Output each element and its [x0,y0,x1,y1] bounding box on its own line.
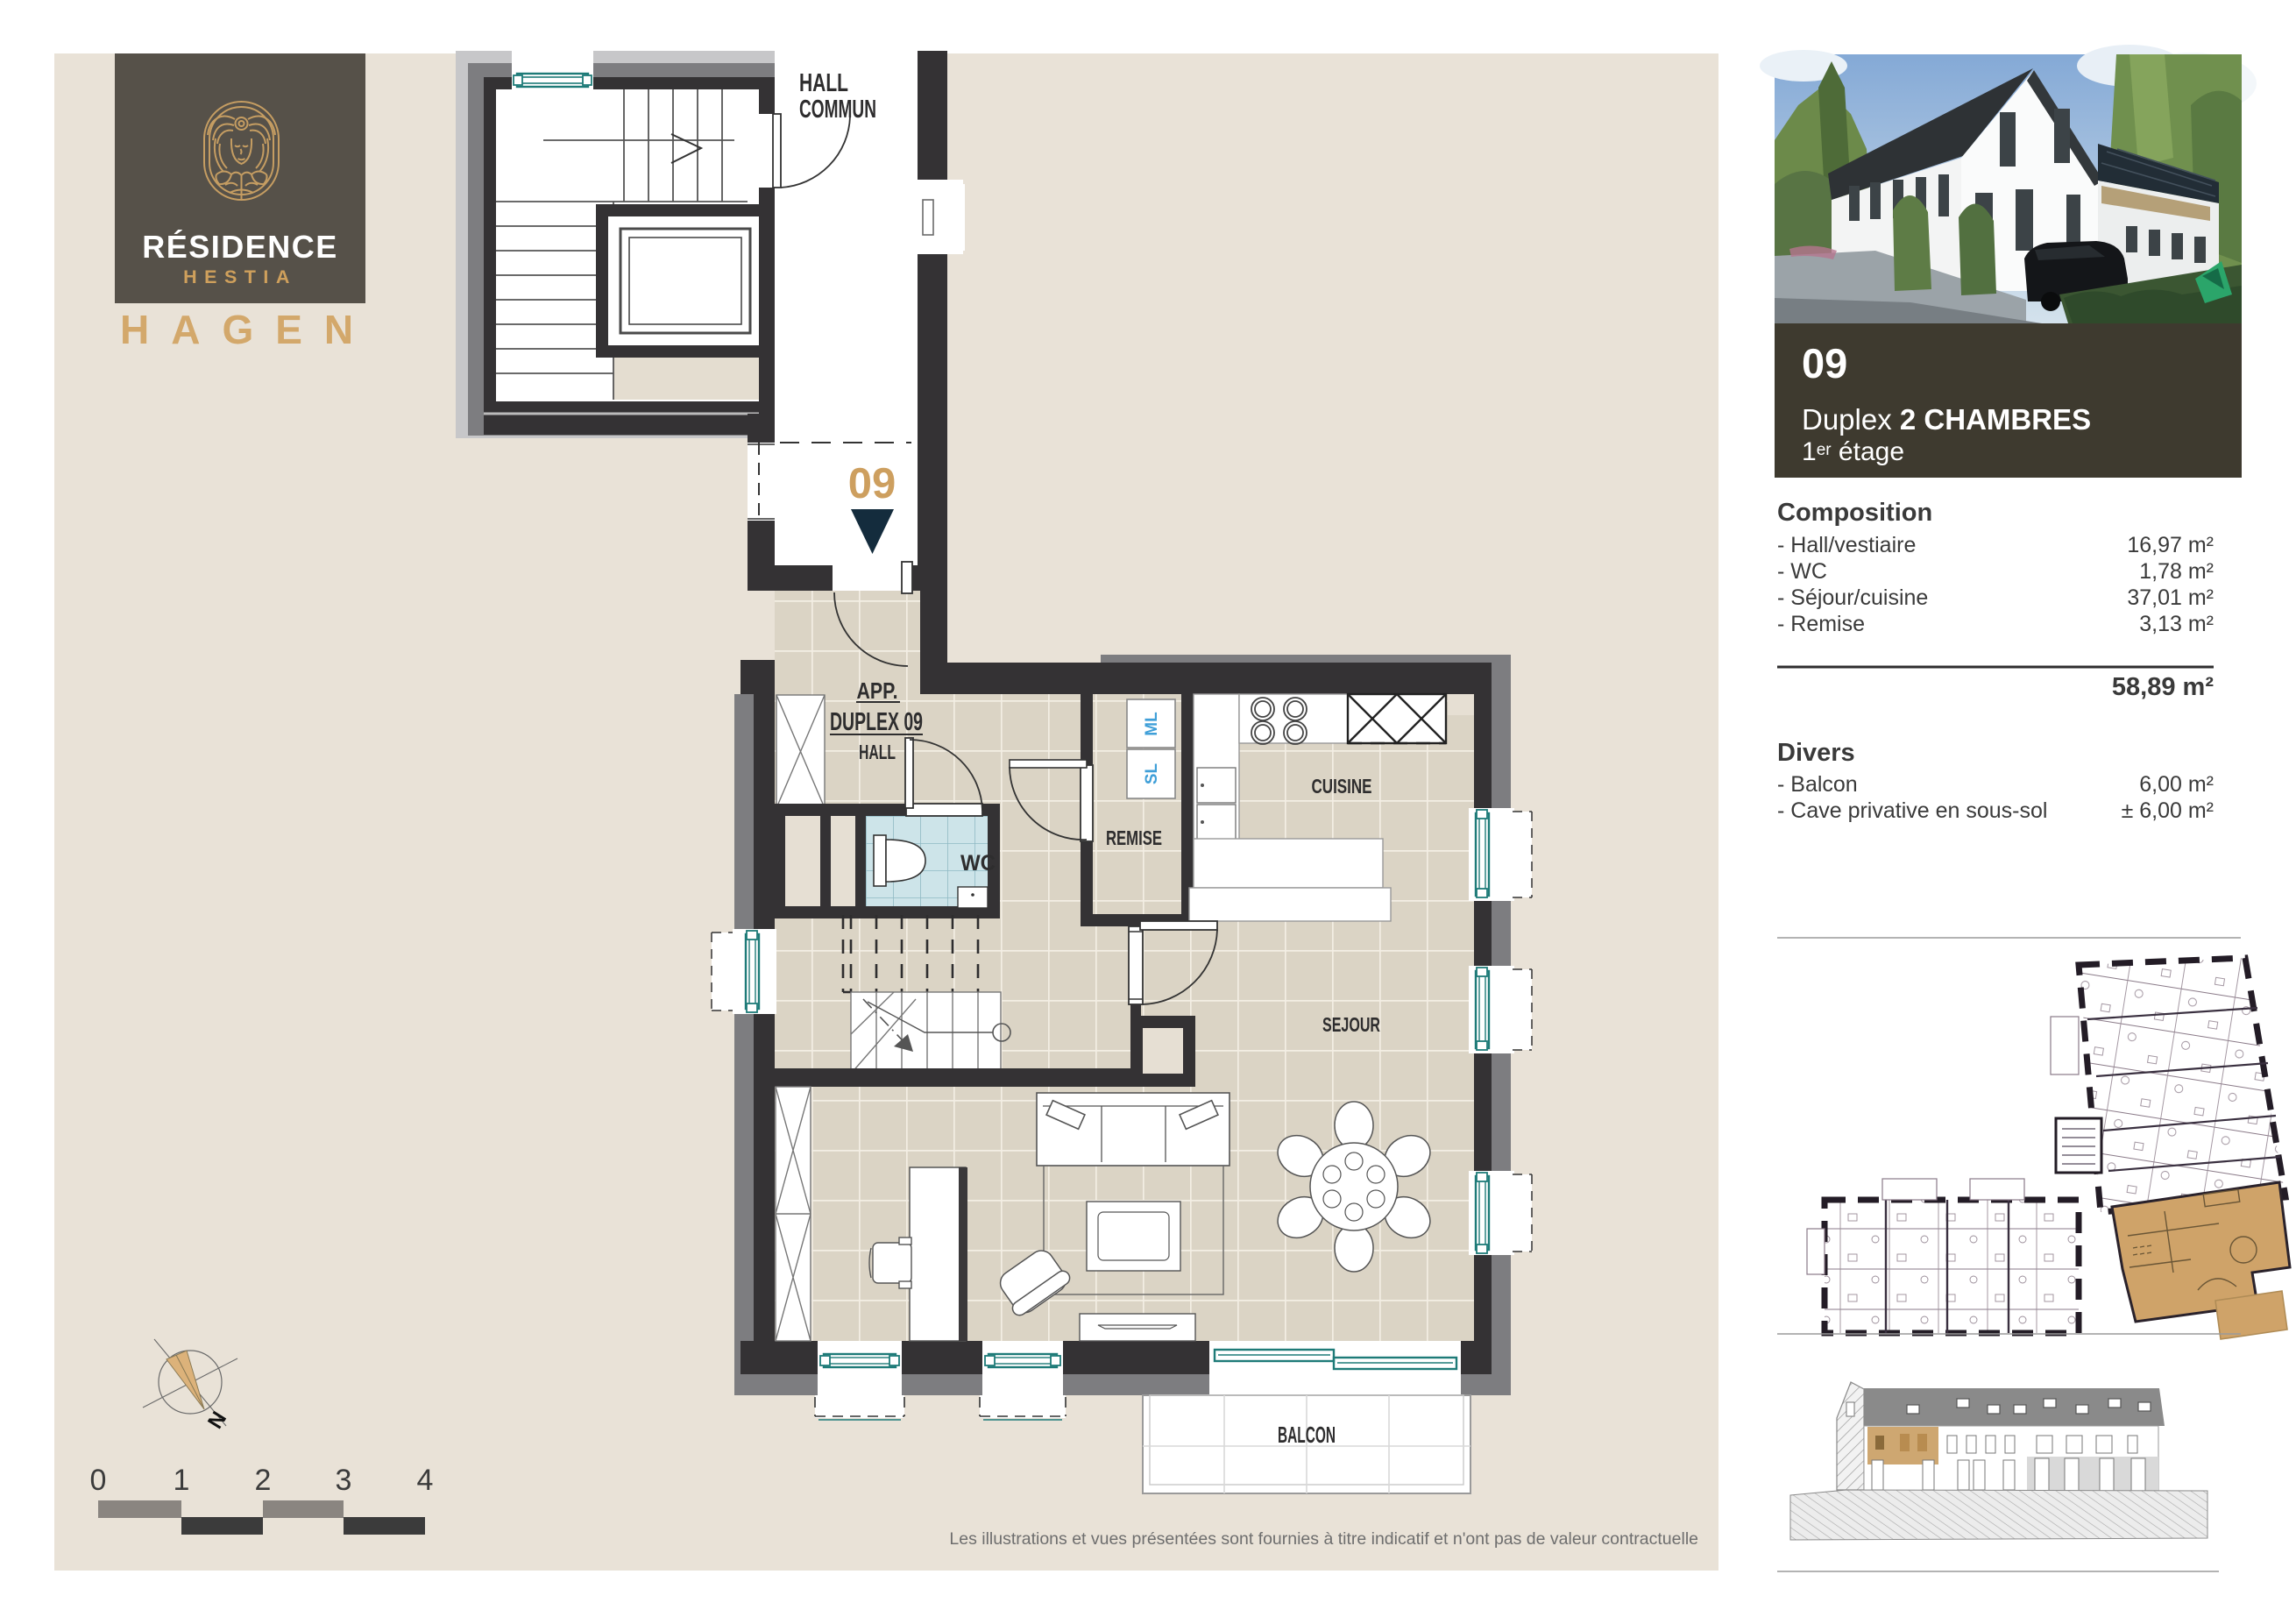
svg-text:Les illustrations et vues prés: Les illustrations et vues présentées son… [949,1529,1698,1549]
svg-text:- Hall/vestiaire: - Hall/vestiaire [1777,533,1916,557]
svg-text:ML: ML [1143,712,1161,736]
svg-text:09: 09 [848,460,896,507]
svg-text:09: 09 [1802,340,1847,386]
svg-text:HALL: HALL [799,69,848,97]
svg-text:REMISE: REMISE [1106,826,1162,849]
svg-text:37,01 m²: 37,01 m² [2127,585,2214,610]
svg-text:DUPLEX 09: DUPLEX 09 [830,708,923,736]
svg-text:Composition: Composition [1777,499,1932,527]
svg-text:- WC: - WC [1777,559,1827,584]
svg-text:1: 1 [174,1464,190,1497]
svg-text:3,13 m²: 3,13 m² [2139,612,2214,636]
svg-text:RÉSIDENCE: RÉSIDENCE [142,229,338,265]
svg-text:SL: SL [1143,762,1161,784]
svg-text:1,78 m²: 1,78 m² [2139,559,2214,584]
svg-text:± 6,00 m²: ± 6,00 m² [2122,798,2214,823]
svg-text:HESTIA: HESTIA [183,266,297,287]
svg-text:SEJOUR: SEJOUR [1322,1013,1380,1036]
svg-text:4: 4 [417,1464,434,1497]
svg-text:16,97 m²: 16,97 m² [2127,533,2214,557]
svg-text:BALCON: BALCON [1278,1422,1336,1448]
svg-text:WC: WC [960,851,996,876]
svg-text:Divers: Divers [1777,739,1855,767]
svg-text:APP.: APP. [857,677,898,704]
svg-text:- Remise: - Remise [1777,612,1865,636]
svg-text:- Balcon: - Balcon [1777,772,1858,797]
svg-text:6,00 m²: 6,00 m² [2139,772,2214,797]
svg-text:Duplex 2 CHAMBRES: Duplex 2 CHAMBRES [1802,403,2091,436]
svg-text:58,89 m²: 58,89 m² [2112,673,2214,701]
svg-text:- Séjour/cuisine: - Séjour/cuisine [1777,585,1928,610]
svg-text:3: 3 [336,1464,352,1497]
svg-text:2: 2 [255,1464,272,1497]
svg-text:- Cave privative en sous-sol: - Cave privative en sous-sol [1777,798,2047,823]
svg-text:HALL: HALL [859,741,896,763]
svg-text:0: 0 [90,1464,107,1497]
svg-text:COMMUN: COMMUN [799,96,876,124]
svg-text:HAGEN: HAGEN [120,307,375,352]
svg-text:CUISINE: CUISINE [1312,775,1372,798]
